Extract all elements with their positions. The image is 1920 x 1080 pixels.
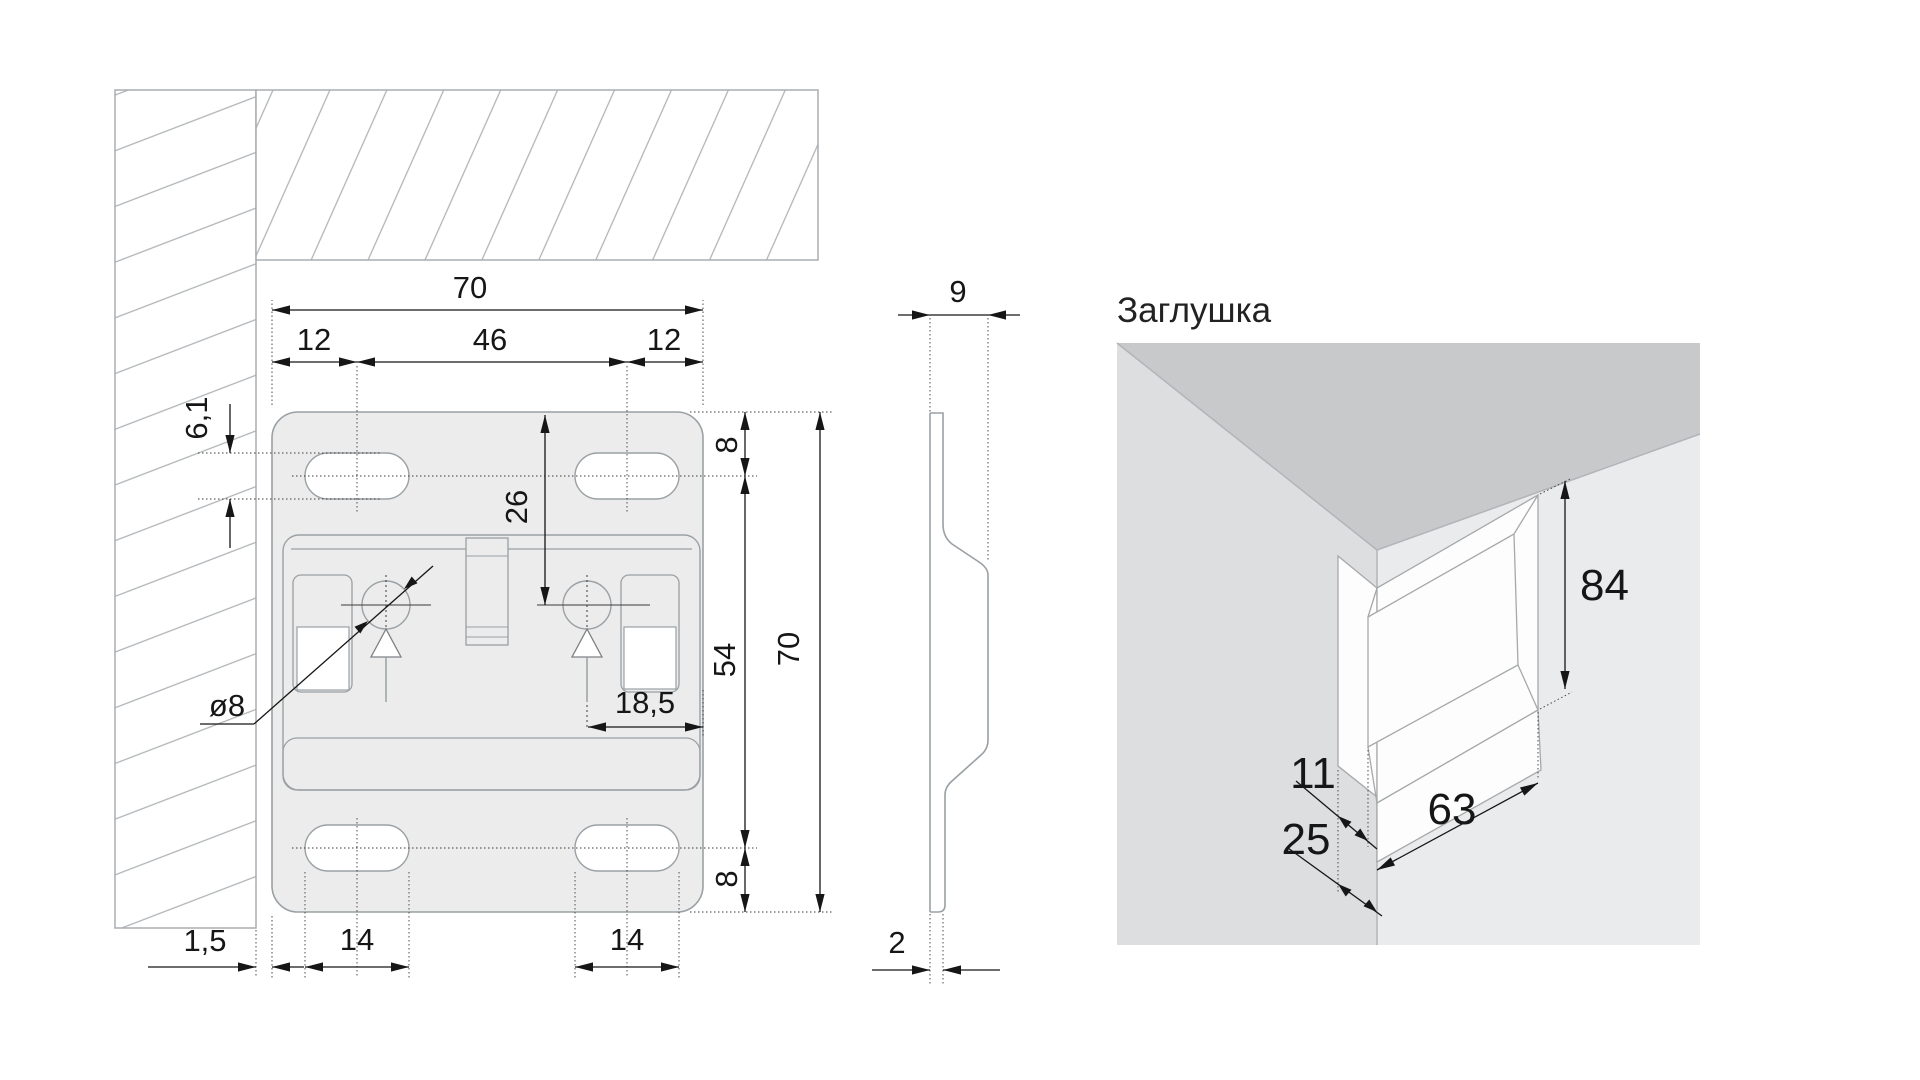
dim-total-height: 70 — [771, 632, 806, 666]
dim-cap-height: 84 — [1580, 561, 1629, 610]
dim-thickness: 2 — [888, 925, 905, 960]
center-tab — [466, 538, 508, 645]
front-view: 70 12 46 12 6,1 26 18,5 ø8 8 54 8 70 1,5… — [115, 90, 832, 978]
side-view: 9 2 — [872, 274, 1020, 984]
dim-right-slot-offset: 12 — [647, 322, 681, 357]
dim-depth: 9 — [949, 274, 966, 309]
top-slot-right — [575, 453, 679, 499]
dim-slot-height: 6,1 — [179, 396, 214, 439]
dim-slot-span: 46 — [473, 322, 507, 357]
dim-slot-width-right: 14 — [610, 922, 644, 957]
dim-left-slot-offset: 12 — [297, 322, 331, 357]
cam-window-left — [293, 575, 352, 692]
dim-bottom-margin: 8 — [709, 870, 744, 887]
ceiling-section-top — [256, 90, 818, 260]
drawing-canvas: 70 12 46 12 6,1 26 18,5 ø8 8 54 8 70 1,5… — [0, 0, 1920, 1080]
dim-hole-diameter: ø8 — [209, 688, 245, 723]
dim-cap-corner-depth: 25 — [1282, 815, 1331, 864]
cam-window-right — [621, 575, 679, 692]
dim-total-width: 70 — [453, 270, 487, 305]
dim-slot-centers-span: 54 — [707, 643, 742, 677]
technical-drawing-page: 70 12 46 12 6,1 26 18,5 ø8 8 54 8 70 1,5… — [0, 0, 1920, 1080]
cap-view-title: Заглушка — [1117, 291, 1272, 330]
dim-hole-to-edge: 18,5 — [615, 685, 675, 720]
side-profile — [930, 413, 988, 912]
dim-top-margin: 8 — [709, 436, 744, 453]
cap-3d-view: Заглушка — [1117, 291, 1700, 945]
dim-wall-gap: 1,5 — [183, 923, 226, 958]
bottom-slot-right — [575, 825, 679, 871]
wall-section-left — [115, 90, 256, 928]
dim-slot-width-left: 14 — [340, 922, 374, 957]
dim-cap-corner-offset: 11 — [1290, 749, 1336, 798]
side-extension-lines — [930, 318, 988, 984]
dim-cap-width: 63 — [1428, 785, 1477, 834]
side-dimensions — [872, 315, 1020, 970]
mounting-plate — [272, 412, 703, 912]
dim-hole-from-top: 26 — [499, 490, 534, 524]
